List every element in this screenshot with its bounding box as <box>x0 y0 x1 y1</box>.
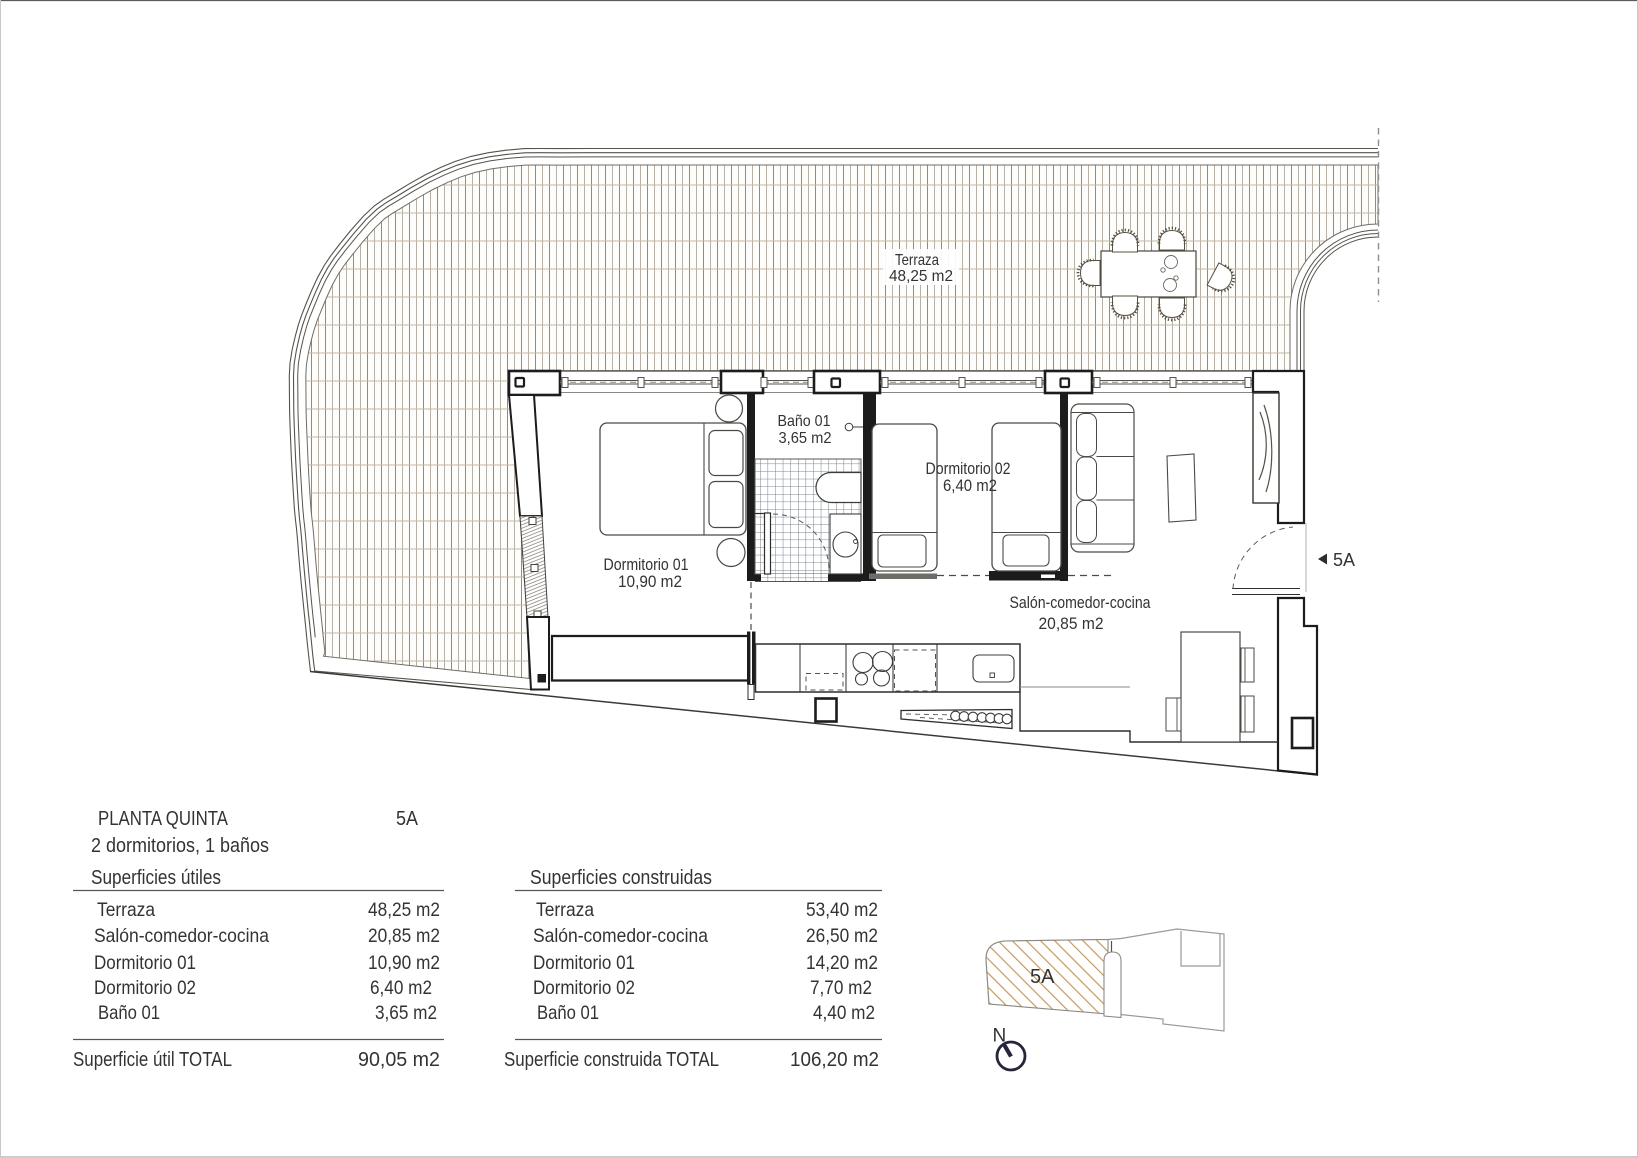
svg-text:20,85 m2: 20,85 m2 <box>368 925 440 947</box>
svg-text:Baño 01: Baño 01 <box>778 413 831 430</box>
svg-text:Superficies construidas: Superficies construidas <box>530 867 712 889</box>
svg-text:Dormitorio 01: Dormitorio 01 <box>533 952 635 974</box>
svg-text:Dormitorio 02: Dormitorio 02 <box>926 460 1011 478</box>
svg-text:6,40 m2: 6,40 m2 <box>943 477 997 495</box>
svg-text:PLANTA QUINTA: PLANTA QUINTA <box>98 807 228 830</box>
svg-text:Superficies útiles: Superficies útiles <box>91 867 221 889</box>
svg-text:Baño 01: Baño 01 <box>98 1002 160 1024</box>
svg-text:5A: 5A <box>396 807 418 830</box>
svg-text:10,90 m2: 10,90 m2 <box>368 952 440 974</box>
svg-text:Dormitorio 02: Dormitorio 02 <box>533 977 635 999</box>
svg-text:Salón-comedor-cocina: Salón-comedor-cocina <box>1010 594 1152 612</box>
svg-text:Terraza: Terraza <box>895 252 939 269</box>
svg-text:4,40 m2: 4,40 m2 <box>813 1002 875 1024</box>
svg-text:6,40 m2: 6,40 m2 <box>370 977 432 999</box>
svg-text:10,90 m2: 10,90 m2 <box>618 573 682 591</box>
svg-text:90,05 m2: 90,05 m2 <box>358 1049 440 1071</box>
svg-text:48,25 m2: 48,25 m2 <box>889 268 953 285</box>
svg-text:3,65 m2: 3,65 m2 <box>779 430 832 447</box>
svg-text:Terraza: Terraza <box>536 899 594 921</box>
svg-text:26,50 m2: 26,50 m2 <box>806 925 878 947</box>
svg-text:20,85 m2: 20,85 m2 <box>1039 615 1104 633</box>
svg-text:Salón-comedor-cocina: Salón-comedor-cocina <box>94 925 269 947</box>
svg-text:48,25 m2: 48,25 m2 <box>368 899 440 921</box>
svg-text:Superficie construida TOTAL: Superficie construida TOTAL <box>504 1049 719 1071</box>
svg-text:Dormitorio 02: Dormitorio 02 <box>94 977 196 999</box>
svg-text:Terraza: Terraza <box>97 899 155 921</box>
svg-text:5A: 5A <box>1333 550 1355 570</box>
svg-text:14,20 m2: 14,20 m2 <box>806 952 878 974</box>
svg-text:Baño 01: Baño 01 <box>537 1002 599 1024</box>
svg-text:Dormitorio 01: Dormitorio 01 <box>94 952 196 974</box>
svg-text:Salón-comedor-cocina: Salón-comedor-cocina <box>533 925 708 947</box>
svg-text:106,20 m2: 106,20 m2 <box>790 1049 879 1071</box>
svg-text:53,40 m2: 53,40 m2 <box>806 899 878 921</box>
svg-text:Dormitorio 01: Dormitorio 01 <box>604 556 689 574</box>
svg-text:3,65 m2: 3,65 m2 <box>375 1002 437 1024</box>
svg-text:7,70 m2: 7,70 m2 <box>810 977 872 999</box>
svg-text:2 dormitorios, 1 baños: 2 dormitorios, 1 baños <box>91 835 269 857</box>
svg-text:5A: 5A <box>1030 966 1055 988</box>
svg-text:Superficie útil TOTAL: Superficie útil TOTAL <box>73 1049 232 1071</box>
